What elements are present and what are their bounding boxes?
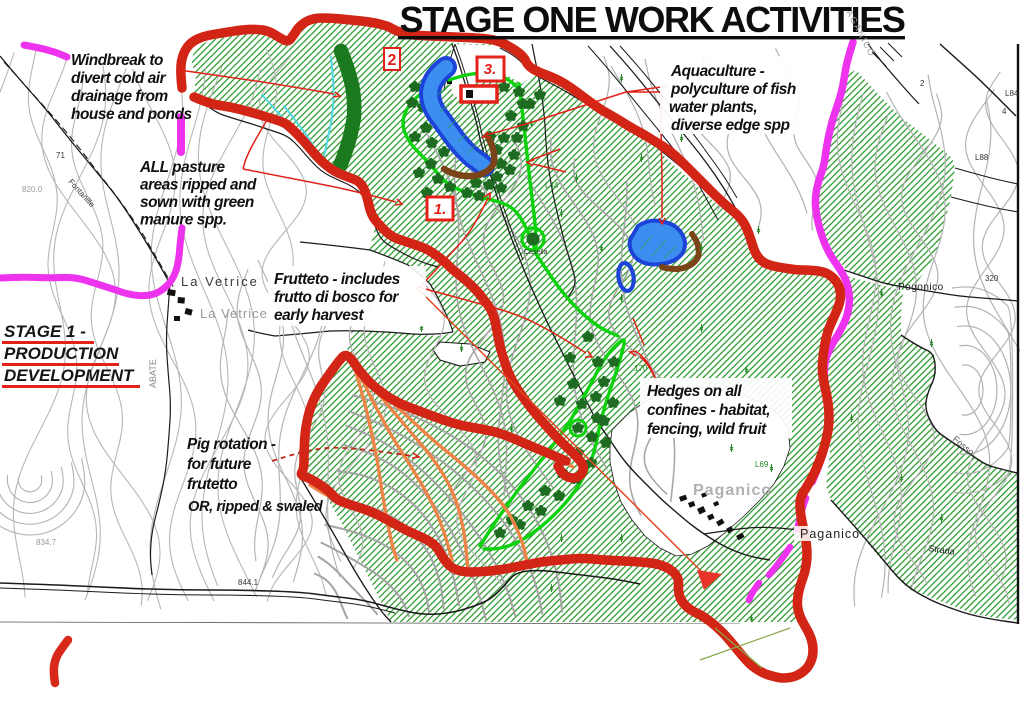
svg-text:2: 2 — [388, 52, 397, 69]
svg-text:4: 4 — [1002, 107, 1007, 116]
svg-text:3.: 3. — [484, 61, 497, 78]
svg-text:L44: L44 — [545, 181, 559, 190]
svg-text:Casella: Casella — [524, 249, 547, 256]
svg-text:L84: L84 — [1005, 89, 1019, 98]
svg-text:71: 71 — [56, 151, 65, 160]
svg-text:Paganico: Paganico — [693, 482, 772, 499]
svg-text:La Vetrice: La Vetrice — [200, 306, 268, 321]
svg-text:844.1: 844.1 — [238, 578, 259, 587]
svg-text:170: 170 — [634, 364, 648, 373]
svg-text:320: 320 — [985, 274, 999, 283]
svg-text:Paganico: Paganico — [800, 527, 860, 541]
svg-text:STAGE ONE WORK ACTIVITIES: STAGE ONE WORK ACTIVITIES — [399, 0, 904, 40]
svg-text:ABATE: ABATE — [148, 359, 158, 388]
svg-text:L88: L88 — [975, 153, 989, 162]
svg-text:OR, ripped & swaled: OR, ripped & swaled — [188, 499, 324, 515]
svg-text:L69: L69 — [755, 460, 769, 469]
svg-text:820.0: 820.0 — [22, 185, 43, 194]
svg-text:La Vetrice: La Vetrice — [181, 274, 259, 289]
svg-text:1.: 1. — [434, 201, 447, 218]
svg-text:834.7: 834.7 — [36, 538, 57, 547]
svg-text:2: 2 — [920, 79, 925, 88]
svg-text:Pogonico: Pogonico — [898, 282, 944, 293]
